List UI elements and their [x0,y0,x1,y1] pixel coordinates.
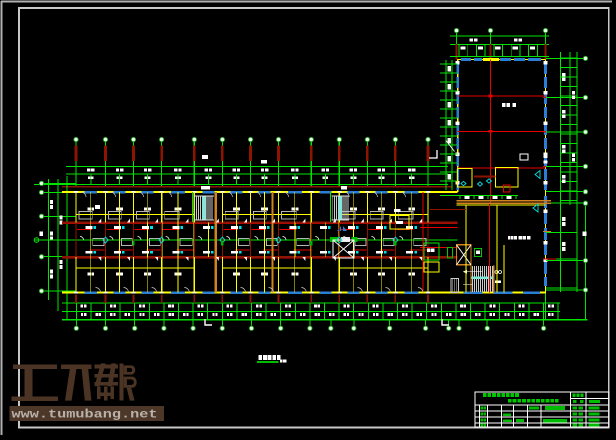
svg-text:www.tumubang.net: www.tumubang.net [12,408,158,422]
